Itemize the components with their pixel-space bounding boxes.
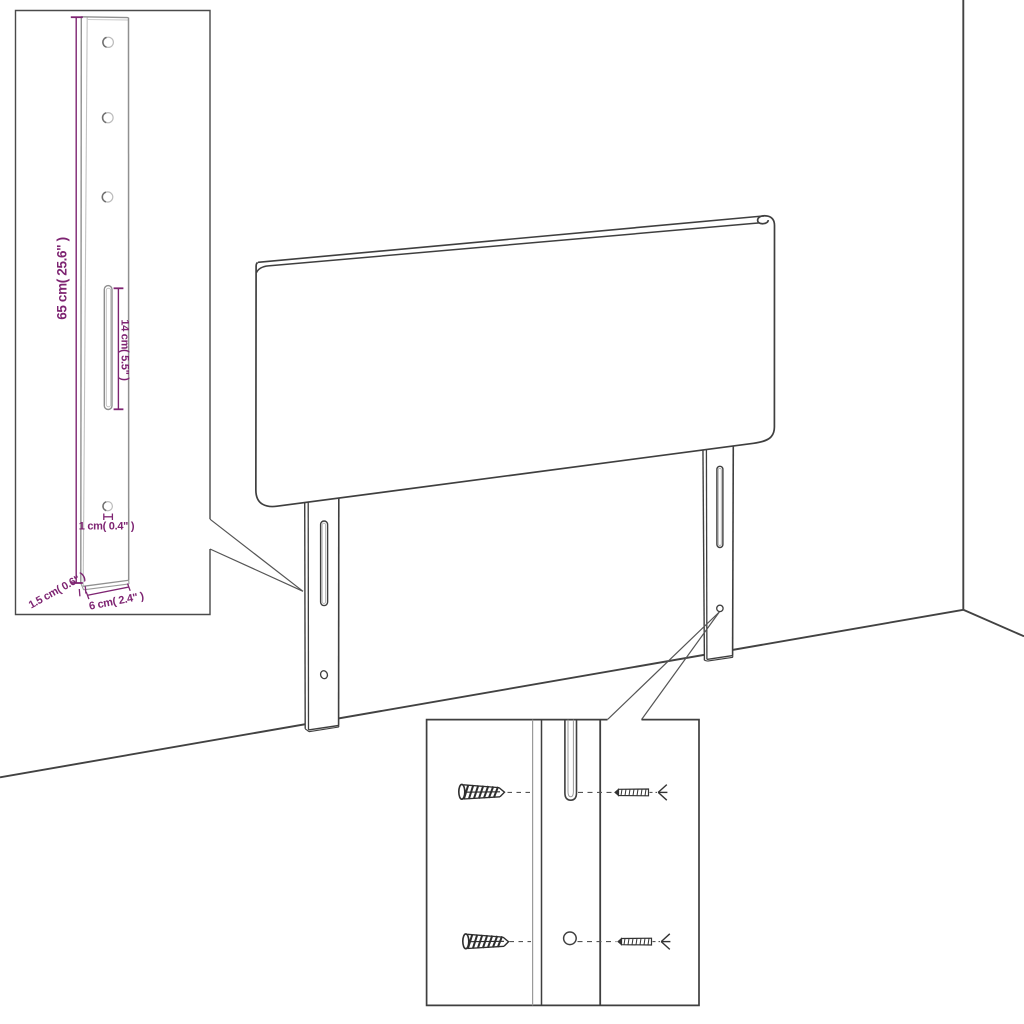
svg-text:14 cm( 5.5" ): 14 cm( 5.5" ) [119, 319, 131, 381]
svg-text:1 cm( 0.4" ): 1 cm( 0.4" ) [79, 521, 135, 533]
svg-text:65 cm( 25.6" ): 65 cm( 25.6" ) [55, 237, 70, 320]
